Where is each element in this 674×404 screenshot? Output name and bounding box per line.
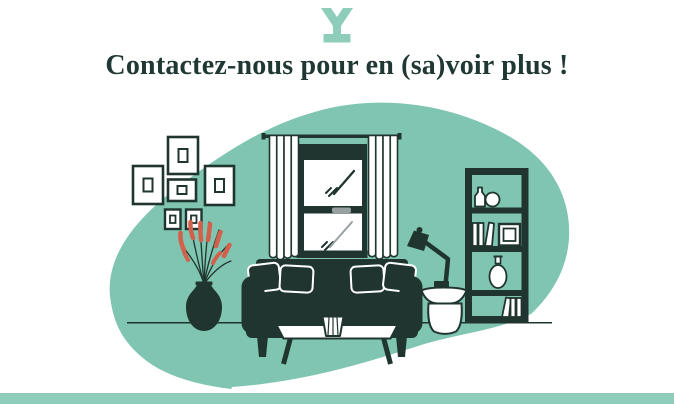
- sofa-armrest: [242, 276, 265, 334]
- shelf-ball-icon: [486, 193, 500, 207]
- shelf-picture-frame-icon: [499, 224, 520, 246]
- living-room-illustration: [0, 0, 674, 404]
- curtain-left: [270, 136, 299, 260]
- sofa-armrest: [400, 276, 423, 334]
- contact-hero-section: Contactez-nous pour en (sa)voir plus !: [0, 0, 674, 404]
- shelf-books-icon: [502, 298, 522, 318]
- living-room-scene-svg: [0, 0, 674, 404]
- bottom-accent-bar: [0, 393, 674, 404]
- picture-frame-icon: [165, 210, 181, 230]
- shelf-books-icon: [473, 223, 495, 247]
- curtain-right: [369, 136, 398, 260]
- pleated-cup-icon: [323, 317, 344, 337]
- window-handle: [332, 208, 351, 214]
- picture-frame-icon: [205, 166, 234, 205]
- picture-frame-icon: [168, 137, 198, 174]
- window: [297, 144, 368, 258]
- picture-frame-icon: [133, 166, 163, 204]
- picture-frame-icon: [168, 180, 196, 202]
